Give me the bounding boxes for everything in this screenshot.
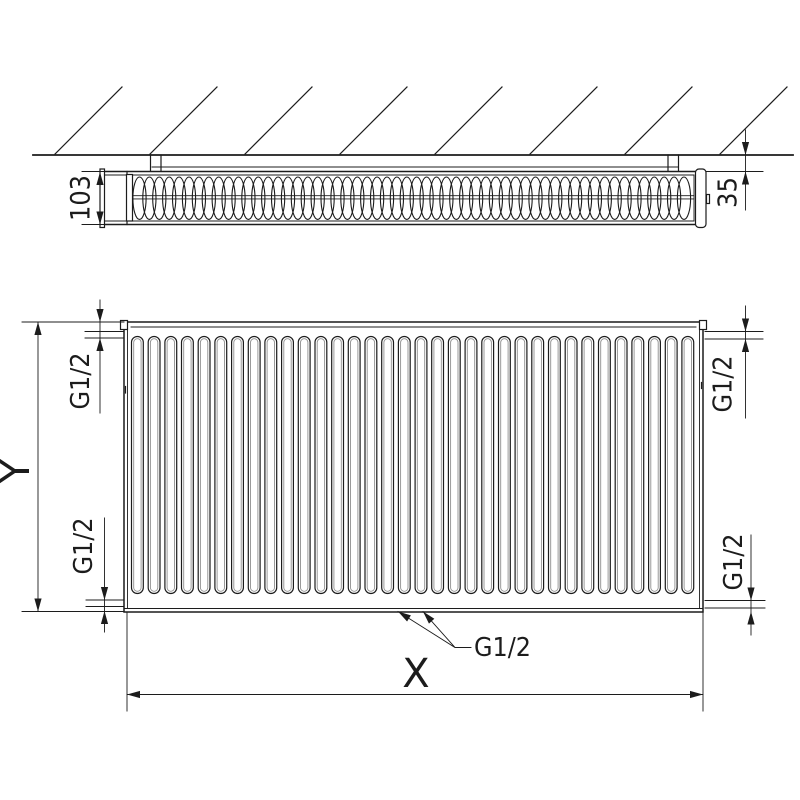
right-end-cap [696, 169, 707, 228]
arrowhead [101, 587, 108, 600]
wall-bracket-left [151, 155, 162, 172]
arrowhead [34, 322, 41, 335]
stub-lines [705, 601, 765, 609]
stub-lines [86, 600, 124, 607]
arrowhead [96, 309, 103, 322]
arrowhead [742, 339, 749, 352]
hatch-line [720, 87, 787, 154]
connection-top-right: G1/2 [705, 306, 763, 418]
top-grille-cap-right [700, 321, 707, 330]
arrowhead [690, 691, 703, 698]
connection-label: G1/2 [719, 534, 749, 591]
connection-label: G1/2 [66, 353, 96, 410]
hatch-line [530, 87, 597, 154]
hatch-line [150, 87, 217, 154]
arrowhead [742, 142, 749, 155]
width-label: X [402, 651, 429, 697]
radiator-technical-drawing: 103 35 Y X [0, 0, 800, 800]
front-view: Y X G1/2 G1/2 G1/2 G [0, 300, 765, 711]
left-end-plate-inner [127, 175, 133, 222]
stub-lines [85, 332, 124, 339]
connection-bottom-left: G1/2 [69, 518, 124, 633]
cad-canvas: 103 35 Y X [0, 0, 800, 800]
connection-label: G1/2 [474, 633, 531, 663]
arrowhead [742, 319, 749, 332]
hatch-line [435, 87, 502, 154]
hatch-line [340, 87, 407, 154]
hatch-line [55, 87, 122, 154]
wall-hatching [55, 87, 787, 154]
arrowhead [747, 588, 754, 601]
arrowhead [96, 338, 103, 351]
connection-label: G1/2 [69, 518, 99, 575]
dimension-wall-distance: 35 [706, 130, 763, 210]
height-label: Y [0, 458, 39, 484]
wall-bracket-right [668, 155, 679, 172]
dimension-height: Y [0, 322, 124, 612]
stub-lines [705, 332, 763, 340]
connection-bottom-right: G1/2 [705, 534, 765, 636]
top-view: 103 35 [33, 87, 793, 228]
connection-label: G1/2 [709, 356, 739, 413]
arrowhead [127, 691, 140, 698]
arrowhead [101, 611, 108, 624]
right-end-nub [707, 195, 710, 204]
arrowhead [747, 612, 754, 625]
dimension-width: X [127, 612, 703, 711]
connection-top-left: G1/2 [66, 300, 124, 413]
wall-distance-label: 35 [714, 177, 744, 208]
hatch-line [625, 87, 692, 154]
arrowhead [34, 599, 41, 612]
hatch-line [245, 87, 312, 154]
depth-label: 103 [65, 175, 96, 221]
